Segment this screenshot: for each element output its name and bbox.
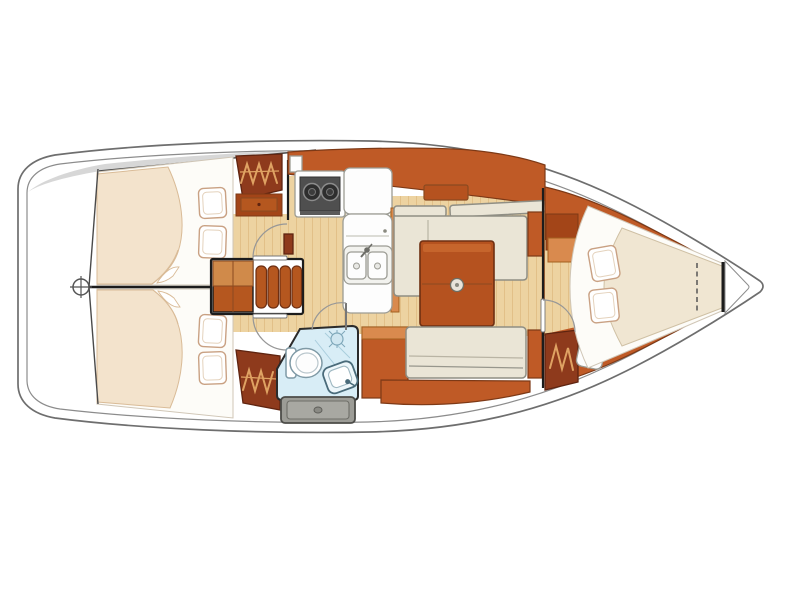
table-highlight [423, 244, 491, 252]
galley-counter [344, 168, 392, 214]
salon-end-cabinet-starboard [528, 330, 542, 378]
stove [295, 171, 345, 217]
pillow [198, 226, 226, 259]
step-tread [268, 266, 279, 308]
shower-drain-icon [329, 330, 345, 348]
door-leaf [253, 314, 287, 318]
salon-table [420, 241, 494, 326]
pillow [198, 187, 227, 218]
fridge-latch [383, 229, 387, 233]
pillow [198, 352, 226, 385]
step-tread [256, 266, 267, 308]
step-tread [280, 266, 291, 308]
pillow [588, 288, 619, 324]
door-leaf [541, 299, 545, 332]
hanging-locker [545, 330, 578, 390]
table-knob-center [455, 283, 459, 287]
settee-starboard [406, 327, 526, 378]
drawer-knob [257, 203, 260, 206]
step-tread [292, 266, 302, 308]
burner-ring [327, 189, 334, 196]
salon-end-cabinet-port [528, 212, 543, 256]
companionway-steps [211, 259, 303, 314]
boat-layout-diagram [0, 0, 800, 600]
layout-canvas [0, 0, 800, 600]
nav-cabinet-top [362, 327, 408, 339]
sink-drain [375, 263, 381, 269]
burner-ring [309, 189, 316, 196]
toilet-icon [286, 348, 322, 378]
door-post [284, 234, 293, 254]
pillow [587, 245, 620, 282]
door-leaf [253, 256, 287, 260]
pillow [198, 314, 227, 347]
double-sink [344, 244, 392, 284]
sink-drain [354, 263, 360, 269]
faucet-base [364, 247, 370, 253]
berth-mattress [97, 290, 182, 408]
locker-hatch [281, 397, 355, 423]
galley-upper-locker [290, 156, 302, 172]
cabinet-recess-handle [424, 185, 468, 200]
oven-front [300, 211, 340, 215]
